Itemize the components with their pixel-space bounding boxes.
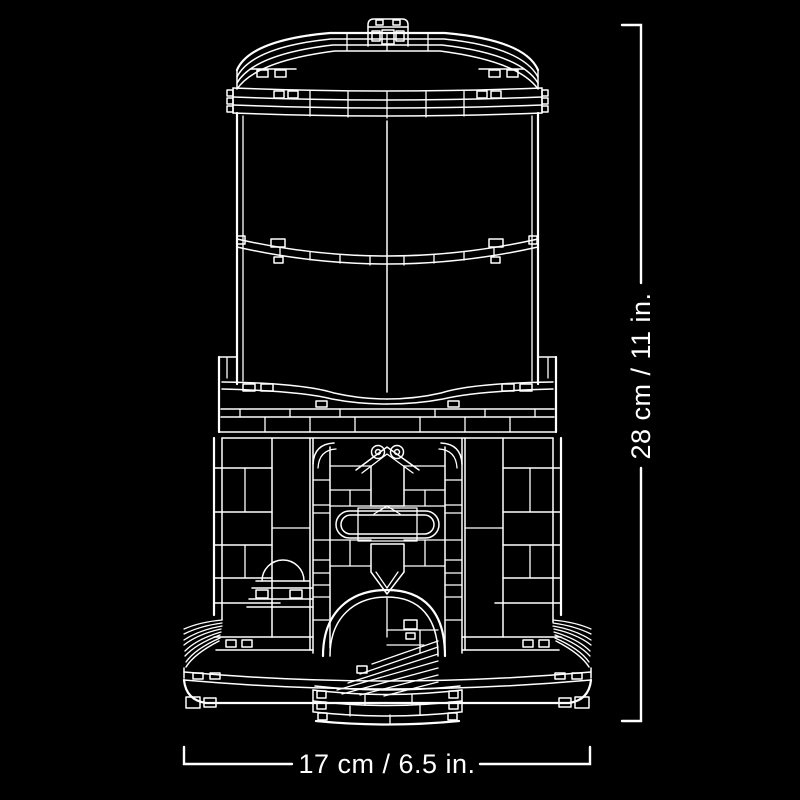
canister-body <box>237 113 538 392</box>
height-dimension-label: 28 cm / 11 in. <box>626 292 656 459</box>
left-dome <box>247 560 313 607</box>
height-dimension: 28 cm / 11 in. <box>622 25 656 721</box>
chute-hatch-lines <box>337 641 438 696</box>
center-ornament <box>336 446 439 595</box>
lid-stud <box>489 70 500 77</box>
canister-lid <box>237 19 538 89</box>
lid-stud <box>275 70 286 77</box>
collar-bands <box>227 88 548 118</box>
product-dimension-diagram: 28 cm / 11 in. 17 cm / 6.5 in. <box>0 0 800 800</box>
model-wireframe <box>184 19 591 725</box>
width-dimension-label: 17 cm / 6.5 in. <box>298 749 475 779</box>
diagram-canvas: 28 cm / 11 in. 17 cm / 6.5 in. <box>0 0 800 800</box>
width-dimension: 17 cm / 6.5 in. <box>184 747 590 779</box>
bottom-stack <box>313 686 462 725</box>
